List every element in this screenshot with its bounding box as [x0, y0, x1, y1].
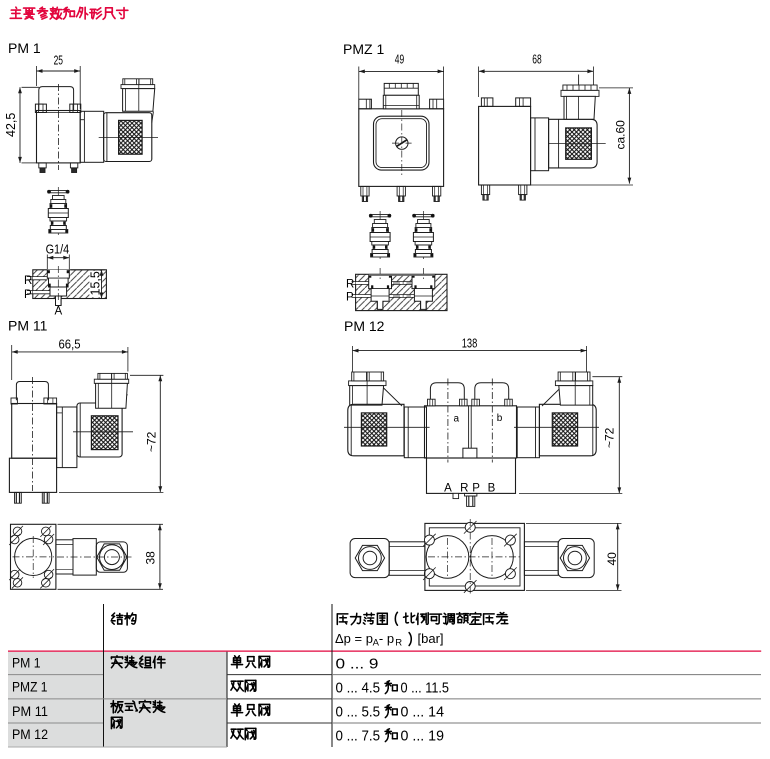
svg-text:A: A	[54, 306, 62, 318]
svg-text:B: B	[488, 483, 496, 495]
svg-text:b: b	[497, 413, 503, 424]
svg-text:PM 12: PM 12	[12, 726, 48, 742]
svg-text:~72: ~72	[603, 427, 617, 448]
svg-text:138: 138	[462, 337, 478, 351]
svg-text:0 ... 4.5: 0 ... 4.5	[336, 679, 381, 696]
svg-text:- p: - p	[379, 631, 394, 646]
svg-text:[bar]: [bar]	[418, 631, 444, 646]
svg-text:0 ... 14: 0 ... 14	[401, 703, 445, 720]
svg-text:Δp = p: Δp = p	[335, 631, 373, 646]
svg-text:G1/4: G1/4	[46, 242, 70, 256]
svg-text:P: P	[346, 292, 354, 304]
svg-text:42,5: 42,5	[4, 113, 18, 137]
svg-text:P: P	[472, 483, 480, 495]
svg-text:ca.60: ca.60	[614, 120, 628, 150]
svg-text:38: 38	[144, 551, 158, 565]
svg-text:0 ... 11.5: 0 ... 11.5	[401, 679, 450, 696]
svg-text:0 ... 9: 0 ... 9	[336, 655, 379, 672]
svg-text:49: 49	[395, 53, 404, 67]
svg-text:R: R	[395, 638, 402, 649]
svg-text:0 ... 7.5: 0 ... 7.5	[336, 727, 381, 744]
svg-text:PMZ 1: PMZ 1	[12, 679, 48, 695]
svg-text:R: R	[460, 483, 468, 495]
svg-text:66,5: 66,5	[59, 338, 81, 352]
svg-text:40: 40	[605, 552, 619, 566]
svg-text:~72: ~72	[144, 431, 158, 452]
svg-text:PMZ 1: PMZ 1	[343, 41, 384, 57]
svg-text:P: P	[24, 289, 32, 301]
svg-text:PM 11: PM 11	[8, 318, 48, 334]
svg-text:A: A	[444, 483, 452, 495]
svg-text:PM 11: PM 11	[12, 703, 48, 719]
svg-text:68: 68	[532, 53, 541, 67]
svg-text:0 ... 19: 0 ... 19	[401, 727, 445, 744]
svg-text:25: 25	[54, 54, 63, 68]
svg-text:PM 12: PM 12	[344, 318, 385, 334]
svg-text:R: R	[24, 275, 32, 287]
svg-text:a: a	[454, 413, 460, 424]
svg-text:PM 1: PM 1	[12, 655, 41, 671]
svg-text:R: R	[346, 279, 354, 291]
svg-text:0 ... 5.5: 0 ... 5.5	[336, 703, 381, 720]
svg-text:PM 1: PM 1	[8, 40, 41, 56]
